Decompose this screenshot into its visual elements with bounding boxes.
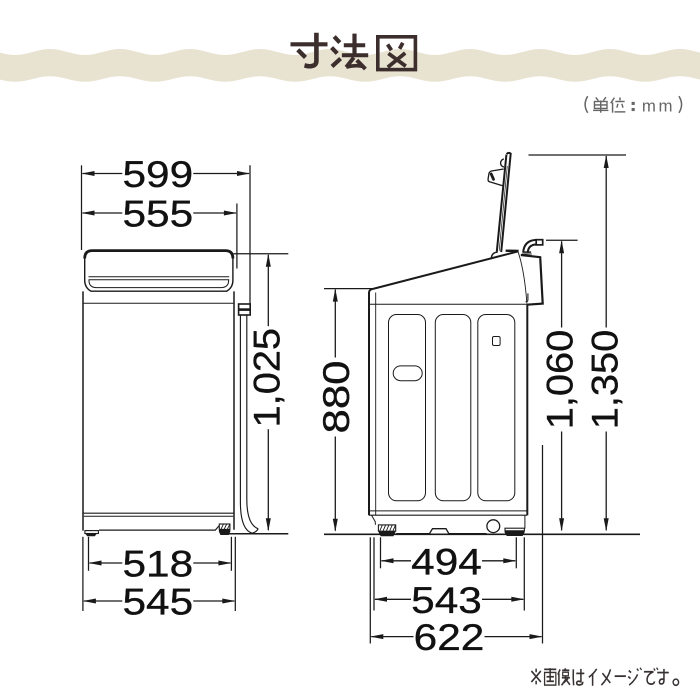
svg-text:555: 555 bbox=[122, 194, 193, 235]
svg-text:545: 545 bbox=[122, 582, 193, 623]
svg-text:518: 518 bbox=[122, 544, 193, 585]
svg-text:1,060: 1,060 bbox=[540, 330, 581, 430]
svg-text:1,350: 1,350 bbox=[585, 330, 626, 430]
svg-text:mm: mm bbox=[642, 97, 675, 116]
svg-text:599: 599 bbox=[122, 154, 193, 195]
svg-text:494: 494 bbox=[411, 542, 482, 583]
svg-text:622: 622 bbox=[414, 618, 485, 659]
svg-text:543: 543 bbox=[411, 580, 482, 621]
svg-text:1,025: 1,025 bbox=[247, 328, 288, 428]
svg-text:880: 880 bbox=[315, 360, 357, 433]
